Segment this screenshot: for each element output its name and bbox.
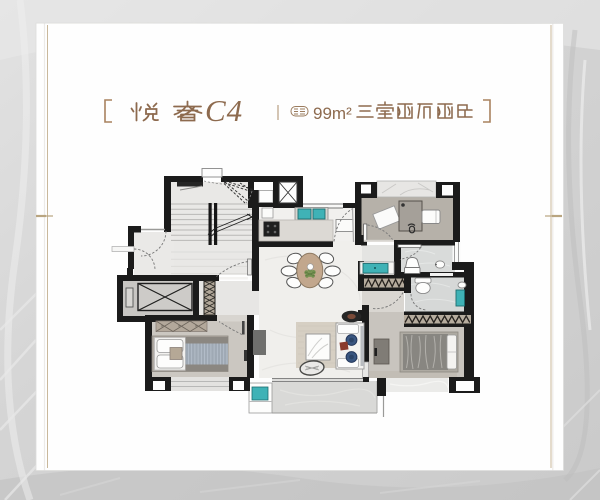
svg-text:99m²: 99m² [313,104,352,123]
svg-text:C4: C4 [205,93,243,128]
